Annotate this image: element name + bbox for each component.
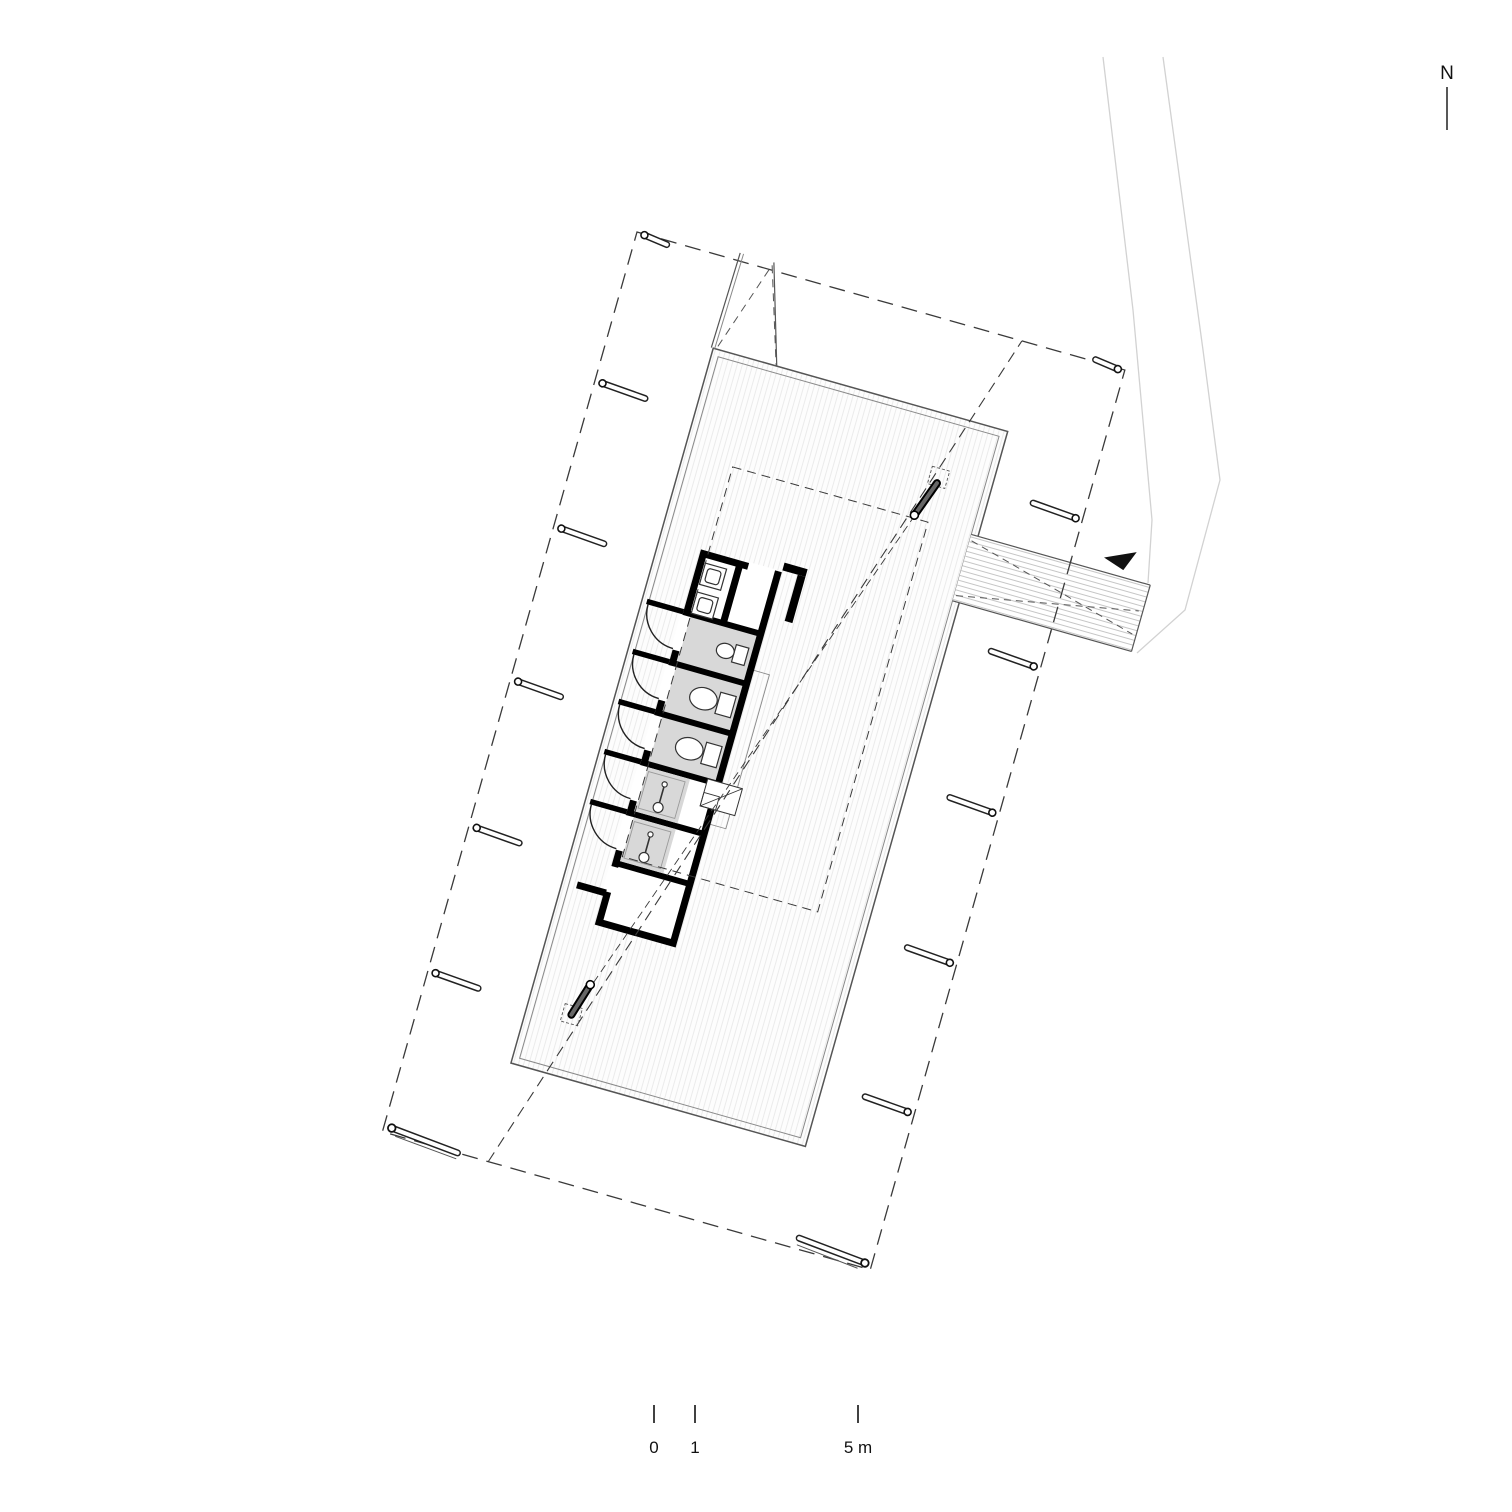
- footpath-edge-left: [1103, 57, 1152, 583]
- ramp-direction-line: [717, 257, 802, 365]
- anchor-icon: [948, 797, 997, 817]
- entry-ramp: [711, 252, 803, 366]
- site-frame: [381, 224, 1207, 1298]
- anchor-icon: [472, 824, 521, 844]
- anchor-icon: [514, 677, 563, 697]
- anchor-icon: [557, 524, 606, 544]
- anchor-icon: [431, 969, 480, 989]
- anchor-icon: [906, 947, 955, 967]
- anchor-icon: [385, 1123, 460, 1158]
- entry-arrow-icon: [1102, 544, 1137, 572]
- anchor-icon: [1094, 359, 1122, 373]
- scale-label-0: 0: [649, 1438, 658, 1457]
- deck-hatch: [511, 348, 1008, 1146]
- anchor-icon: [1031, 503, 1080, 523]
- bridge-hatch: [952, 534, 1150, 651]
- anchor-icon: [598, 379, 647, 399]
- deck: [511, 348, 1008, 1146]
- north-label: N: [1440, 63, 1454, 84]
- anchor-icon: [989, 651, 1038, 671]
- scale-label-5m: 5 m: [844, 1438, 872, 1457]
- footbridge: [951, 531, 1151, 656]
- anchor-icon: [640, 231, 668, 245]
- site-plan-drawing: N 0 1 5 m: [0, 0, 1512, 1512]
- plan-sheet: N 0 1 5 m: [0, 0, 1512, 1512]
- anchor-icon: [863, 1096, 912, 1116]
- north-arrow: N: [1440, 63, 1454, 130]
- scale-bar: 0 1 5 m: [649, 1405, 872, 1457]
- scale-label-1: 1: [690, 1438, 699, 1457]
